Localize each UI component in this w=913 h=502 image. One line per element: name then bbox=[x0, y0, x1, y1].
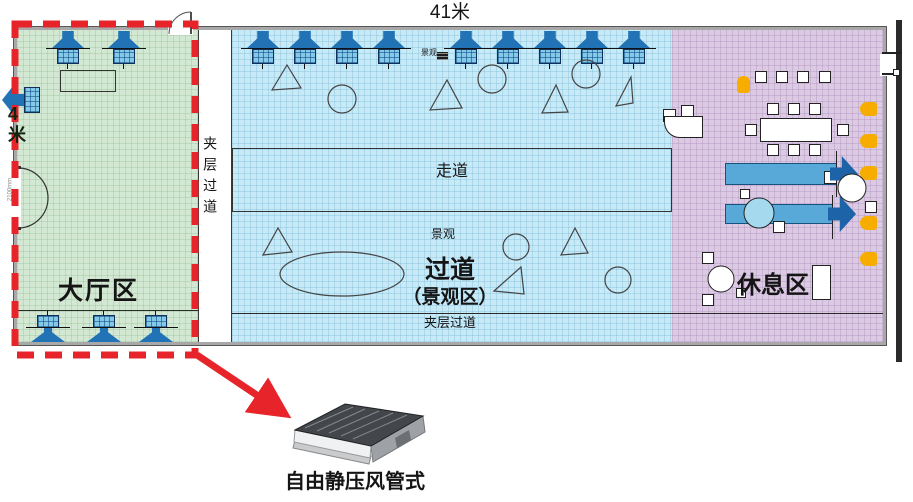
ac-unit-grille bbox=[295, 404, 423, 446]
ac-unit-grille-lines bbox=[305, 407, 407, 439]
mezzanine-bottom-line bbox=[232, 313, 883, 314]
zone-label-lobby: 大厅区 bbox=[58, 277, 139, 306]
chair-square bbox=[865, 201, 877, 213]
air-outlet-icon bbox=[287, 31, 323, 69]
zone-label-landscape-lower: 景观 bbox=[431, 228, 455, 242]
floor-plan-diagram: 41米 bbox=[0, 0, 913, 502]
air-outlet-icon bbox=[138, 311, 174, 342]
zone-label-walkway: 走道 bbox=[232, 163, 672, 181]
zone-label-corridor-line1: 过道 bbox=[400, 256, 500, 285]
zone-label-rest: 休息区 bbox=[737, 272, 809, 300]
chair-square bbox=[773, 221, 785, 233]
top-dimension-label: 41米 bbox=[400, 2, 500, 24]
air-outlet-icon bbox=[532, 31, 568, 69]
chair-square bbox=[745, 124, 757, 136]
zone-label-mezzanine-bottom: 夹层过道 bbox=[405, 316, 495, 331]
right-door-line-top bbox=[882, 52, 902, 54]
plant-icon bbox=[860, 134, 877, 148]
callout-arrow bbox=[197, 355, 282, 412]
air-outlet-icon bbox=[830, 156, 858, 192]
door-width-label: 2100mm bbox=[8, 171, 15, 207]
chair-square bbox=[788, 103, 800, 115]
chair-square bbox=[702, 252, 714, 264]
zone-label-landscape-upper: 景观 bbox=[421, 48, 437, 57]
chair-square bbox=[819, 71, 831, 83]
ac-unit-base bbox=[293, 440, 371, 464]
conference-table bbox=[760, 118, 832, 142]
chair-square bbox=[837, 124, 849, 136]
bench-bar bbox=[725, 163, 837, 185]
chair-square bbox=[776, 71, 788, 83]
air-outlet-icon bbox=[106, 31, 142, 69]
chair-square bbox=[797, 71, 809, 83]
unit-type-label: 自由静压风管式 bbox=[283, 471, 427, 494]
chair-square bbox=[788, 144, 800, 156]
top-door-gap bbox=[168, 25, 193, 35]
reception-counter bbox=[664, 116, 703, 138]
plant-icon bbox=[737, 76, 750, 93]
lobby-table bbox=[60, 70, 116, 92]
plant-icon bbox=[860, 252, 877, 266]
air-outlet-icon bbox=[30, 311, 66, 342]
ac-unit-side bbox=[371, 416, 425, 462]
air-outlet-icon bbox=[616, 31, 652, 69]
ac-unit-image bbox=[293, 404, 425, 464]
air-outlet-icon bbox=[329, 31, 365, 69]
plant-icon bbox=[860, 216, 877, 230]
chair-square bbox=[702, 294, 714, 306]
zone-label-mezzanine-left: 夹层过道 bbox=[202, 136, 218, 220]
air-outlet-icon bbox=[245, 31, 281, 69]
air-outlet-icon bbox=[828, 196, 856, 232]
chair-square bbox=[809, 144, 821, 156]
right-door-stop bbox=[893, 69, 900, 76]
left-door-jamb-bottom bbox=[13, 227, 21, 230]
left-door-jamb-top bbox=[13, 166, 21, 169]
zone-label-corridor-line2: （景观区） bbox=[383, 287, 517, 309]
chair-square bbox=[809, 103, 821, 115]
cabinet bbox=[812, 265, 831, 300]
air-outlet-icon bbox=[448, 31, 484, 69]
air-outlet-icon bbox=[574, 31, 610, 69]
chair-square bbox=[755, 71, 767, 83]
plant-icon bbox=[860, 166, 877, 180]
small-table-icon bbox=[437, 52, 448, 60]
air-outlet-icon bbox=[86, 311, 122, 342]
chair-square bbox=[767, 144, 779, 156]
left-dimension-label: 4米 bbox=[8, 104, 32, 145]
chair-square bbox=[740, 189, 750, 199]
ac-unit-front bbox=[294, 430, 371, 458]
air-outlet-icon bbox=[490, 31, 526, 69]
air-outlet-icon bbox=[50, 31, 86, 69]
chair-square bbox=[767, 103, 779, 115]
air-outlet-icon bbox=[371, 31, 407, 69]
ac-unit-bracket bbox=[395, 430, 411, 448]
plant-icon bbox=[860, 102, 877, 116]
